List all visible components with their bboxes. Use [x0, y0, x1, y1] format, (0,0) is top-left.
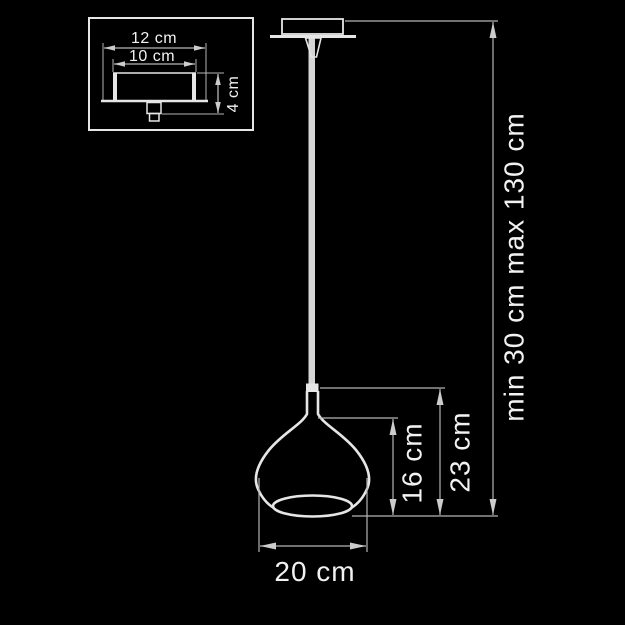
- arrowhead: [490, 22, 497, 38]
- shade-neck-cap: [306, 384, 319, 393]
- dim-label-16cm: 16 cm: [396, 422, 427, 503]
- canopy-box: [282, 19, 343, 34]
- arrowhead: [490, 499, 497, 515]
- dim-label-20cm: 20 cm: [274, 556, 355, 587]
- pendant-lamp-diagram: 12 cm 10 cm 4 cm: [0, 0, 625, 625]
- dimension-drawing-canvas: 12 cm 10 cm 4 cm: [0, 0, 625, 625]
- suspension-cord: [309, 38, 316, 388]
- dim-hanging-range: min 30 cm max 130 cm: [345, 21, 529, 516]
- cord-grip-lower: [150, 114, 160, 122]
- dim-4cm: 4 cm: [162, 73, 242, 114]
- dim-16cm: 16 cm: [318, 418, 427, 515]
- dim-label-4cm: 4 cm: [225, 76, 242, 113]
- arrowhead: [215, 102, 221, 113]
- canopy-detail-inset: 12 cm 10 cm 4 cm: [89, 18, 253, 130]
- arrowhead: [215, 74, 221, 85]
- cord-grip-upper: [147, 103, 161, 114]
- shade-bottom-rim: [273, 496, 352, 517]
- pendant-lamp-drawing: [256, 19, 369, 517]
- dim-label-hanging-range: min 30 cm max 130 cm: [498, 112, 529, 421]
- arrowhead: [437, 499, 444, 515]
- arrowhead: [350, 543, 366, 550]
- arrowhead: [184, 61, 195, 67]
- arrowhead: [437, 389, 444, 405]
- arrowhead: [260, 543, 276, 550]
- arrowhead: [114, 61, 125, 67]
- arrowhead: [104, 45, 115, 51]
- dim-label-23cm: 23 cm: [444, 411, 475, 492]
- glass-shade: [256, 384, 369, 517]
- shade-outline-right: [318, 391, 369, 508]
- arrowhead: [194, 45, 205, 51]
- dim-10cm: 10 cm: [113, 48, 196, 72]
- dim-label-12cm: 12 cm: [131, 30, 177, 47]
- dim-label-10cm: 10 cm: [129, 48, 175, 65]
- shade-outline-left: [256, 391, 307, 508]
